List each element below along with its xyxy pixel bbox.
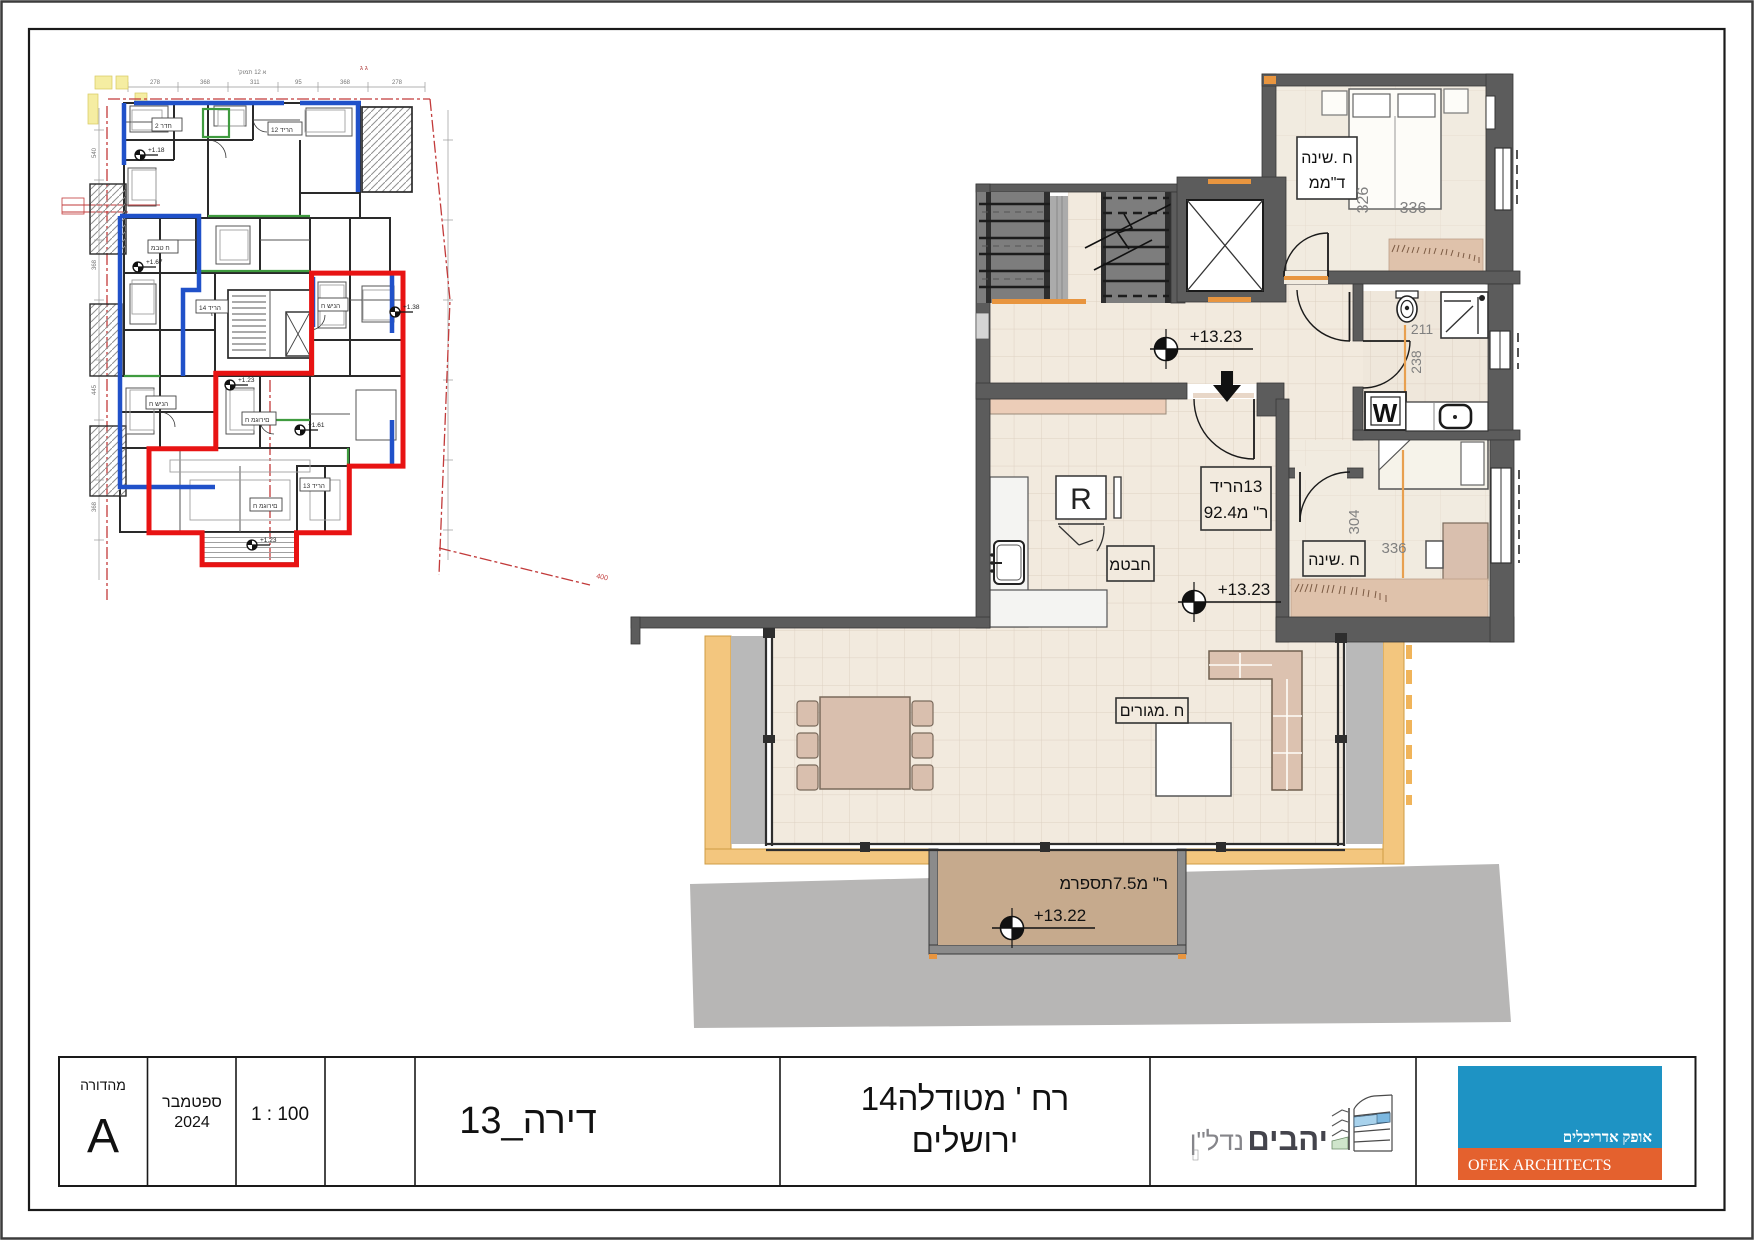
svg-text:326: 326 [1355, 187, 1372, 214]
svg-text:311: 311 [250, 80, 260, 86]
svg-text:336: 336 [1381, 540, 1406, 557]
svg-text:ממ"ד: ממ"ד [1309, 175, 1346, 192]
svg-text:הניש ח: הניש ח [149, 401, 168, 408]
svg-text:הניש ח: הניש ח [321, 303, 340, 310]
svg-text:R: R [1070, 483, 1092, 516]
svg-text:+1.38: +1.38 [403, 304, 420, 311]
svg-text:םילכירדא קפוא: םילכירדא קפוא [1563, 1129, 1653, 1146]
svg-text:14 הריד: 14 הריד [199, 305, 221, 312]
svg-text:W: W [1373, 398, 1398, 428]
svg-text:2024: 2024 [174, 1114, 210, 1131]
svg-text:445: 445 [92, 384, 98, 395]
svg-text:238: 238 [1408, 350, 1424, 374]
svg-text:הניש. ח: הניש. ח [1301, 150, 1353, 167]
svg-text:+13.22: +13.22 [1034, 906, 1086, 925]
svg-text:+1.23: +1.23 [260, 537, 277, 544]
svg-text:+13.23: +13.23 [1190, 327, 1242, 346]
svg-text:336: 336 [1400, 200, 1427, 217]
svg-text:540: 540 [92, 147, 98, 158]
svg-text:12 הריד: 12 הריד [271, 127, 293, 134]
svg-text:הרודהמ: הרודהמ [80, 1077, 126, 1093]
svg-text:368: 368 [340, 80, 351, 86]
svg-text:םילשורי: םילשורי [912, 1122, 1019, 1159]
svg-text:14הלדוטמ ' חר: 14הלדוטמ ' חר [861, 1080, 1070, 1117]
svg-text:רבמטפס: רבמטפס [162, 1094, 222, 1111]
svg-text:מרפסת7.5מ "ר: מרפסת7.5מ "ר [1060, 874, 1169, 893]
svg-text:ג ג: ג ג [360, 65, 368, 72]
svg-text:368: 368 [92, 501, 98, 512]
svg-text:A: A [87, 1110, 119, 1163]
svg-text:+1.61: +1.61 [308, 422, 325, 429]
svg-text:211: 211 [1411, 321, 1434, 337]
svg-text:+1.23: +1.23 [238, 377, 255, 384]
svg-text:+1.67: +1.67 [146, 259, 163, 266]
svg-text:278: 278 [150, 80, 161, 86]
svg-text:דירה13: דירה13 [1210, 477, 1263, 496]
svg-text:2 חדר: 2 חדר [155, 123, 172, 130]
svg-text:םיבהי: םיבהי [1247, 1122, 1328, 1157]
svg-text:ח טבמ: ח טבמ [151, 245, 170, 252]
svg-text:278: 278 [392, 80, 403, 86]
svg-text:368: 368 [92, 259, 98, 270]
svg-text:םירוגמ ח: םירוגמ ח [245, 417, 270, 424]
svg-text:םירוגמ. ח: םירוגמ. ח [1120, 703, 1185, 720]
svg-text:הניש. ח: הניש. ח [1308, 552, 1360, 569]
svg-text:+13.23: +13.23 [1218, 580, 1270, 599]
svg-text:+1.18: +1.18 [148, 147, 165, 154]
svg-text:OFEK ARCHITECTS: OFEK ARCHITECTS [1468, 1157, 1612, 1174]
svg-text:מטבח: מטבח [1109, 557, 1151, 574]
svg-text:304: 304 [1346, 509, 1363, 534]
svg-text:1 : 100: 1 : 100 [251, 1104, 309, 1125]
svg-text:92.4מ "ר: 92.4מ "ר [1204, 503, 1269, 522]
svg-text:13 הריד: 13 הריד [303, 483, 325, 490]
svg-text:13_הריד: 13_הריד [459, 1100, 597, 1142]
svg-text:368: 368 [200, 80, 211, 86]
svg-text:םירוגמ ח: םירוגמ ח [253, 503, 278, 510]
svg-text:95: 95 [295, 80, 302, 86]
svg-text:'א 12 תמוק: 'א 12 תמוק [238, 70, 267, 76]
